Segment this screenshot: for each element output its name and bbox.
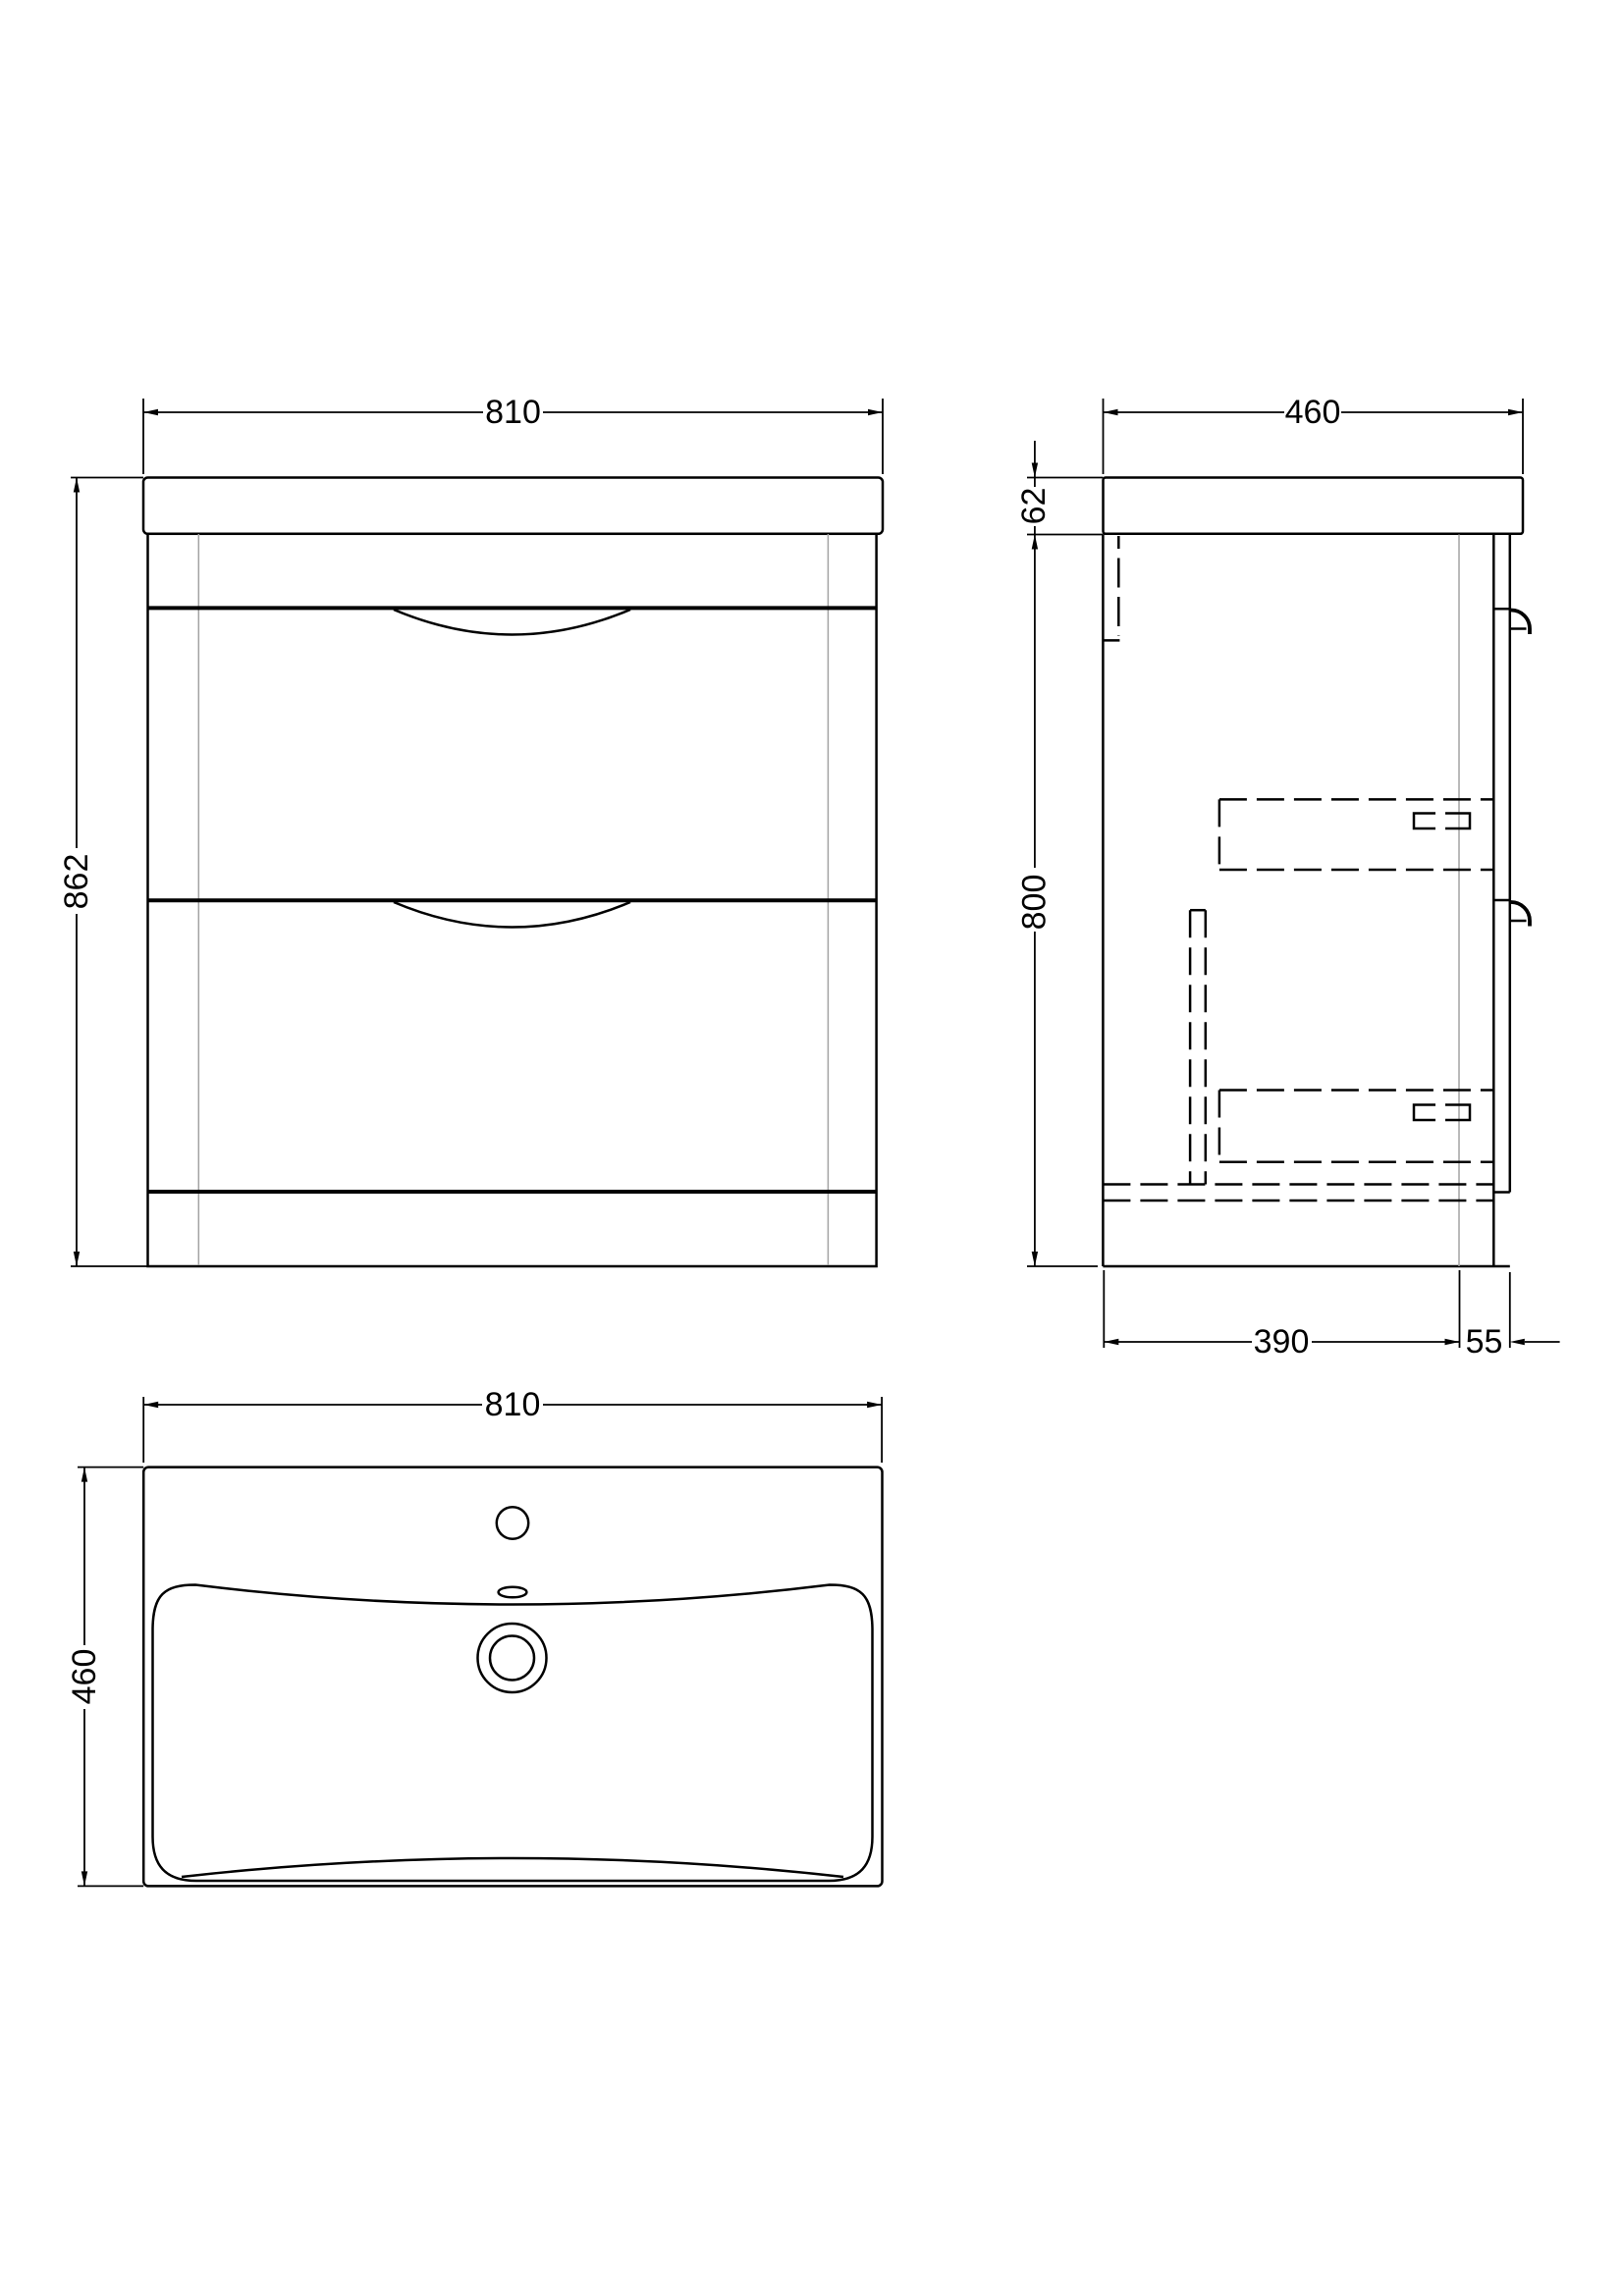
svg-text:460: 460 (1285, 394, 1341, 431)
svg-text:810: 810 (485, 1386, 541, 1423)
svg-text:810: 810 (485, 394, 541, 431)
svg-text:62: 62 (1015, 488, 1053, 525)
svg-text:390: 390 (1254, 1323, 1310, 1361)
svg-text:460: 460 (66, 1649, 103, 1705)
svg-text:862: 862 (58, 854, 95, 910)
svg-text:55: 55 (1466, 1323, 1503, 1361)
svg-text:800: 800 (1016, 875, 1054, 931)
